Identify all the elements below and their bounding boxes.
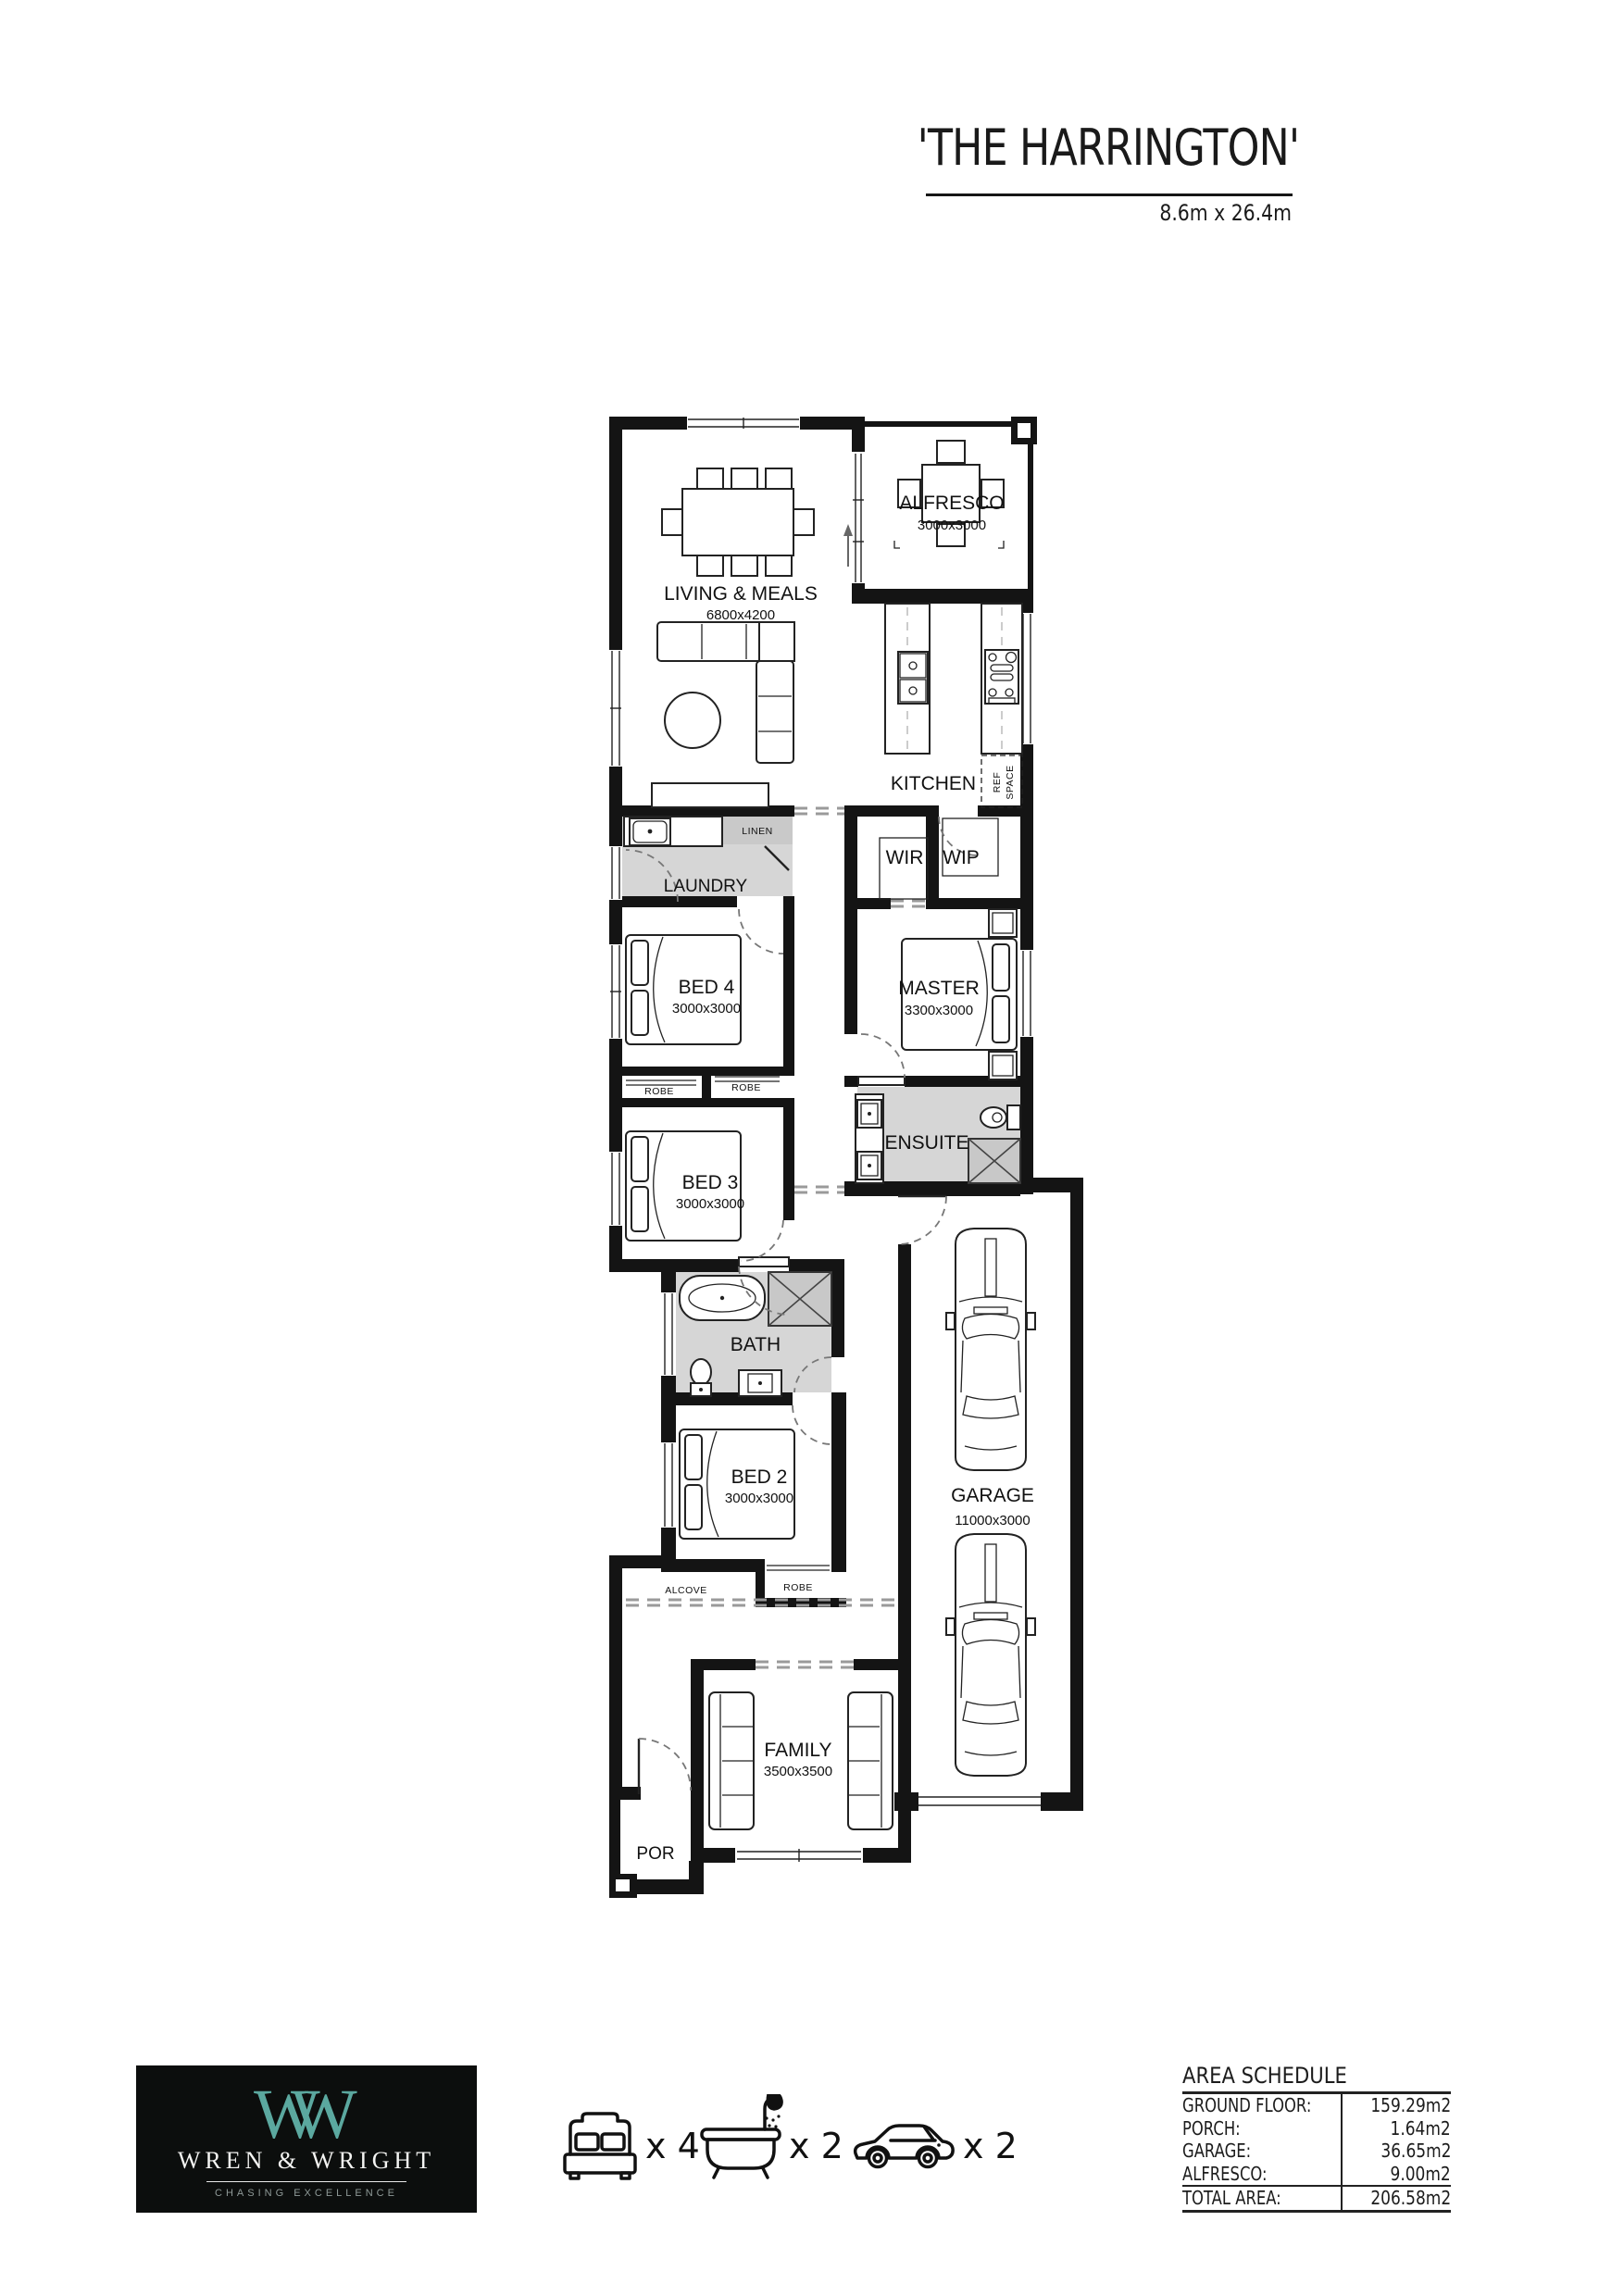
row-value: 9.00m2: [1391, 2163, 1451, 2186]
row-label: GROUND FLOOR:: [1182, 2094, 1311, 2117]
room-size-bed3: 3000x3000: [676, 1196, 744, 1212]
dining-setting: [662, 468, 814, 576]
room-label-family: FAMILY: [764, 1740, 831, 1761]
total-label: TOTAL AREA:: [1182, 2187, 1281, 2210]
plan-dimensions: 8.6m x 26.4m: [981, 200, 1292, 226]
area-schedule-title: AREA SCHEDULE: [1182, 2063, 1418, 2089]
plan-title-block: 'THE HARRINGTON': [833, 119, 1292, 177]
monogram-w2: W: [291, 2080, 357, 2145]
area-schedule-table: GROUND FLOOR: 159.29m2 PORCH: 1.64m2 GAR…: [1182, 2091, 1451, 2213]
builder-logo: W W WREN & WRIGHT CHASING EXCELLENCE: [136, 2065, 477, 2213]
row-value: 159.29m2: [1370, 2094, 1451, 2117]
table-row-total: TOTAL AREA: 206.58m2: [1182, 2185, 1451, 2210]
floor-plan-page: 'THE HARRINGTON' 8.6m x 26.4m: [0, 0, 1624, 2296]
room-size-family: 3500x3500: [764, 1764, 832, 1779]
entry-arrow-icon: [843, 524, 853, 567]
row-value: 36.65m2: [1380, 2140, 1451, 2163]
family-sofas: [709, 1692, 893, 1829]
table-row: ALFRESCO: 9.00m2: [1182, 2163, 1451, 2186]
room-size-living: 6800x4200: [706, 607, 775, 623]
row-label: ALFRESCO:: [1182, 2163, 1268, 2186]
living-sofa: [657, 622, 794, 763]
table-row: GROUND FLOOR: 159.29m2: [1182, 2094, 1451, 2117]
logo-monogram: W W: [237, 2080, 376, 2145]
room-label-wip: WIP: [943, 847, 980, 868]
label-robe-bed4: ROBE: [644, 1086, 674, 1097]
room-label-alfresco: ALFRESCO: [899, 493, 1004, 514]
car-count: x 2: [963, 2126, 1018, 2166]
feature-legend: x 4 x 2 x 2: [537, 2094, 1018, 2196]
room-label-laundry: LAUNDRY: [664, 877, 748, 896]
room-label-garage: GARAGE: [951, 1485, 1034, 1506]
room-size-bed2: 3000x3000: [725, 1491, 793, 1506]
room-label-ensuite: ENSUITE: [884, 1132, 968, 1154]
bath-count: x 2: [789, 2126, 843, 2166]
page-title: 'THE HARRINGTON': [918, 119, 1300, 177]
room-size-bed4: 3000x3000: [672, 1001, 741, 1017]
row-value: 1.64m2: [1391, 2117, 1451, 2140]
toilet-icon: [691, 1359, 711, 1385]
bed-count: x 4: [645, 2126, 700, 2166]
room-label-bath: BATH: [731, 1334, 781, 1355]
room-size-garage: 11000x3000: [955, 1513, 1030, 1529]
room-label-master: MASTER: [898, 978, 980, 999]
brand-tagline: CHASING EXCELLENCE: [215, 2188, 398, 2199]
sliding-door: [852, 452, 865, 583]
car-icon: [856, 2126, 953, 2167]
total-value: 206.58m2: [1370, 2187, 1451, 2210]
car-2: [946, 1534, 1035, 1776]
logo-divider: [206, 2181, 406, 2182]
brand-name: WREN & WRIGHT: [178, 2147, 435, 2175]
label-ref: REF: [992, 772, 1003, 793]
room-size-master: 3300x3000: [905, 1003, 973, 1018]
label-alcove: ALCOVE: [665, 1585, 707, 1596]
room-label-kitchen: KITCHEN: [891, 773, 976, 794]
room-label-wir: WIR: [886, 847, 924, 868]
table-row: PORCH: 1.64m2: [1182, 2117, 1451, 2140]
area-schedule: AREA SCHEDULE GROUND FLOOR: 159.29m2 POR…: [1182, 2063, 1451, 2213]
car-1: [946, 1229, 1035, 1470]
bath-icon: [702, 2094, 781, 2177]
room-label-bed4: BED 4: [679, 977, 735, 998]
row-label: PORCH:: [1182, 2117, 1241, 2140]
garage-door: [918, 1797, 1041, 1805]
room-size-alfresco: 3000x3000: [918, 518, 986, 533]
room-label-porch: POR: [636, 1844, 674, 1864]
room-label-bed2: BED 2: [731, 1466, 788, 1488]
bed-icon: [565, 2114, 635, 2178]
room-label-bed3: BED 3: [682, 1172, 739, 1193]
label-robe-bed3: ROBE: [731, 1082, 761, 1093]
room-label-living: LIVING & MEALS: [664, 583, 818, 605]
label-robe-bed2: ROBE: [783, 1582, 813, 1593]
toilet-icon: [1007, 1105, 1020, 1129]
room-label-linen: LINEN: [742, 826, 772, 837]
table-row: GARAGE: 36.65m2: [1182, 2140, 1451, 2163]
title-underline: [926, 193, 1293, 196]
label-ref-space: SPACE: [1005, 765, 1016, 799]
floor-plan-drawing: LIVING & MEALS 6800x4200 ALFRESCO 3000x3…: [593, 398, 1093, 1916]
row-label: GARAGE:: [1182, 2140, 1251, 2163]
round-rug-icon: [665, 693, 720, 748]
